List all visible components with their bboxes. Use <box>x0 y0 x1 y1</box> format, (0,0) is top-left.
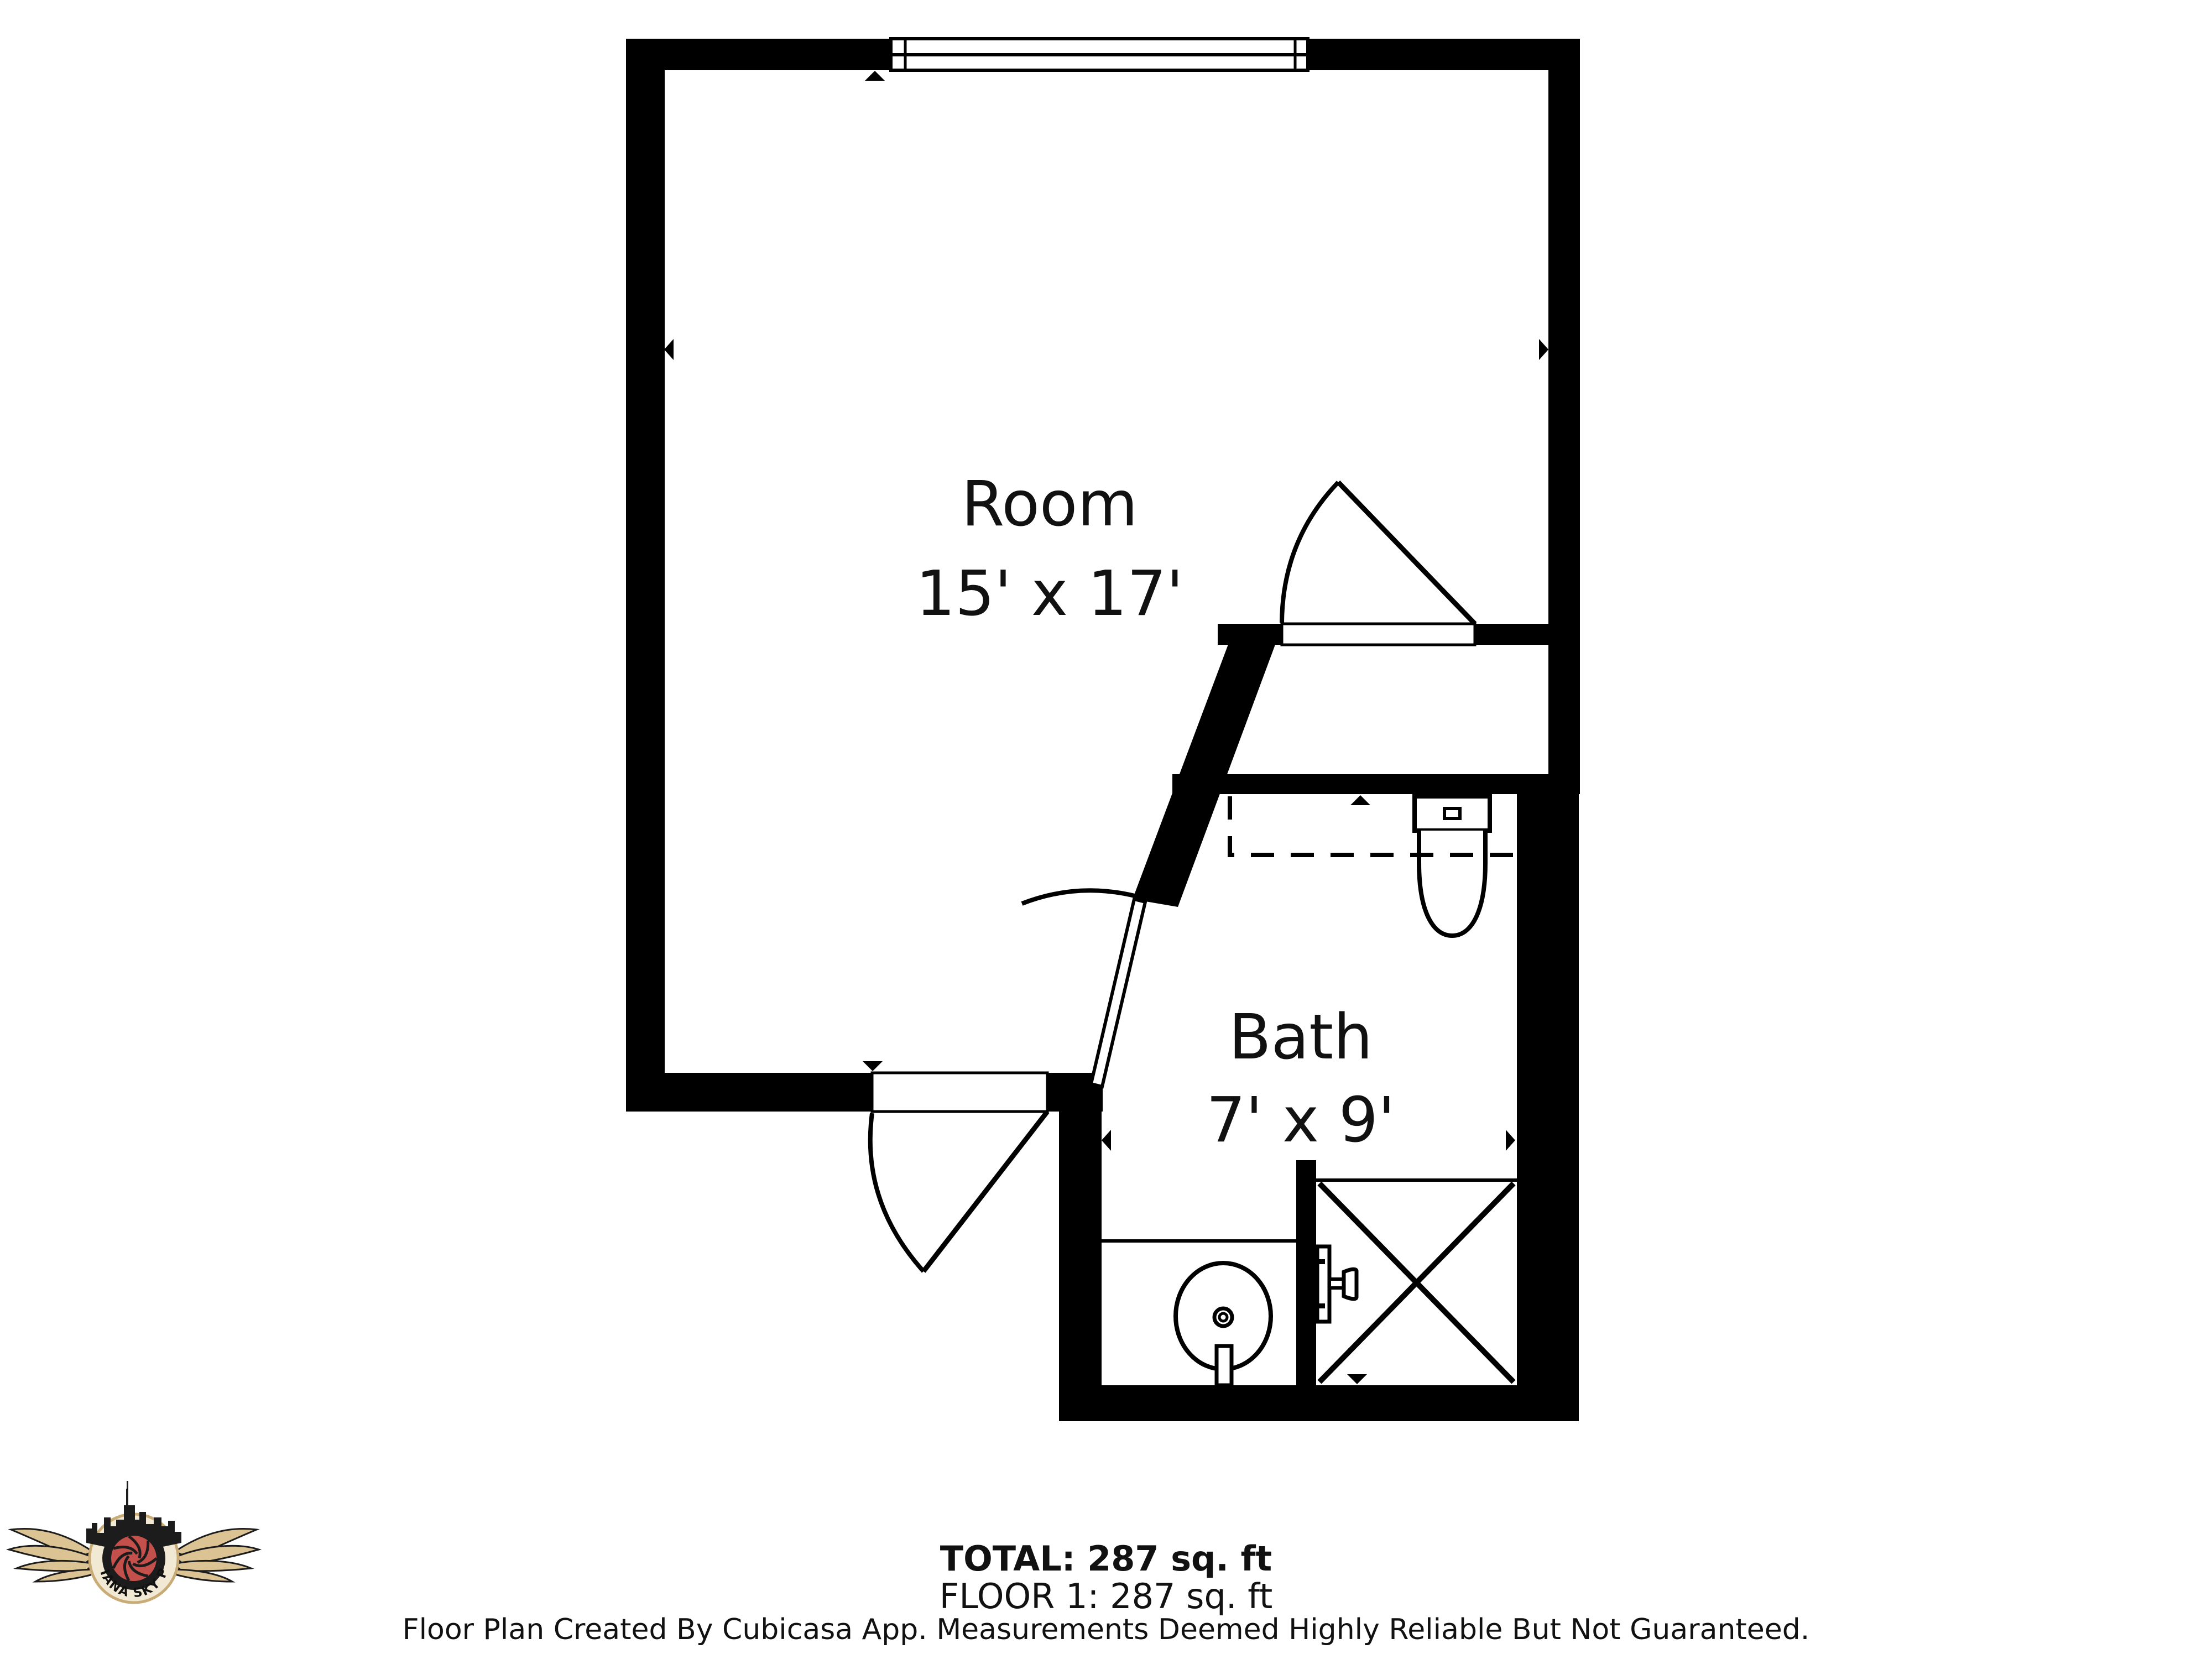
floor-plan-page: Room 15' x 17' Bath 7' x 9' TOTAL: 287 s… <box>0 0 2212 1659</box>
wall-top-right-segment <box>1308 39 1579 70</box>
disclaimer-text: Floor Plan Created By Cubicasa App. Meas… <box>403 1613 1810 1646</box>
shower-valve-bar <box>1317 1246 1329 1322</box>
shower-knob-bell <box>1344 1269 1357 1299</box>
bath-dimensions: 7' x 9' <box>1206 1084 1395 1156</box>
toilet-bowl <box>1419 831 1485 936</box>
toilet-icon <box>1415 796 1490 936</box>
wall-right-bath <box>1517 794 1579 1421</box>
shower-knob-stem <box>1329 1279 1344 1288</box>
shower-valve-tick-top <box>1317 1259 1325 1264</box>
room-label: Room <box>962 468 1138 540</box>
door-threshold <box>1282 624 1475 645</box>
wall-bath-bottom <box>1059 1385 1579 1421</box>
wall-top-left-segment <box>626 39 891 70</box>
wall-corridor-top-right <box>1475 624 1548 645</box>
floor-plan-canvas: Room 15' x 17' Bath 7' x 9' TOTAL: 287 s… <box>0 0 2212 1659</box>
total-area-text: TOTAL: 287 sq. ft <box>940 1538 1272 1579</box>
window-icon <box>891 39 1308 70</box>
wall-left <box>626 39 665 1112</box>
door-threshold <box>872 1073 1047 1112</box>
shower-valve-tick-bottom <box>1317 1303 1325 1308</box>
floor-area-text: FLOOR 1: 287 sq. ft <box>940 1576 1273 1616</box>
room-dimensions: 15' x 17' <box>916 558 1183 630</box>
toilet-flush-button <box>1444 808 1460 818</box>
wall-room-bottom-left <box>626 1073 872 1112</box>
bath-label: Bath <box>1229 1001 1373 1073</box>
wall-right-room <box>1548 39 1580 794</box>
sink-faucet <box>1217 1346 1232 1385</box>
wall-bath-left <box>1059 1112 1102 1385</box>
wall-bath-top <box>1172 774 1579 794</box>
wall-shower-partition <box>1296 1160 1316 1385</box>
